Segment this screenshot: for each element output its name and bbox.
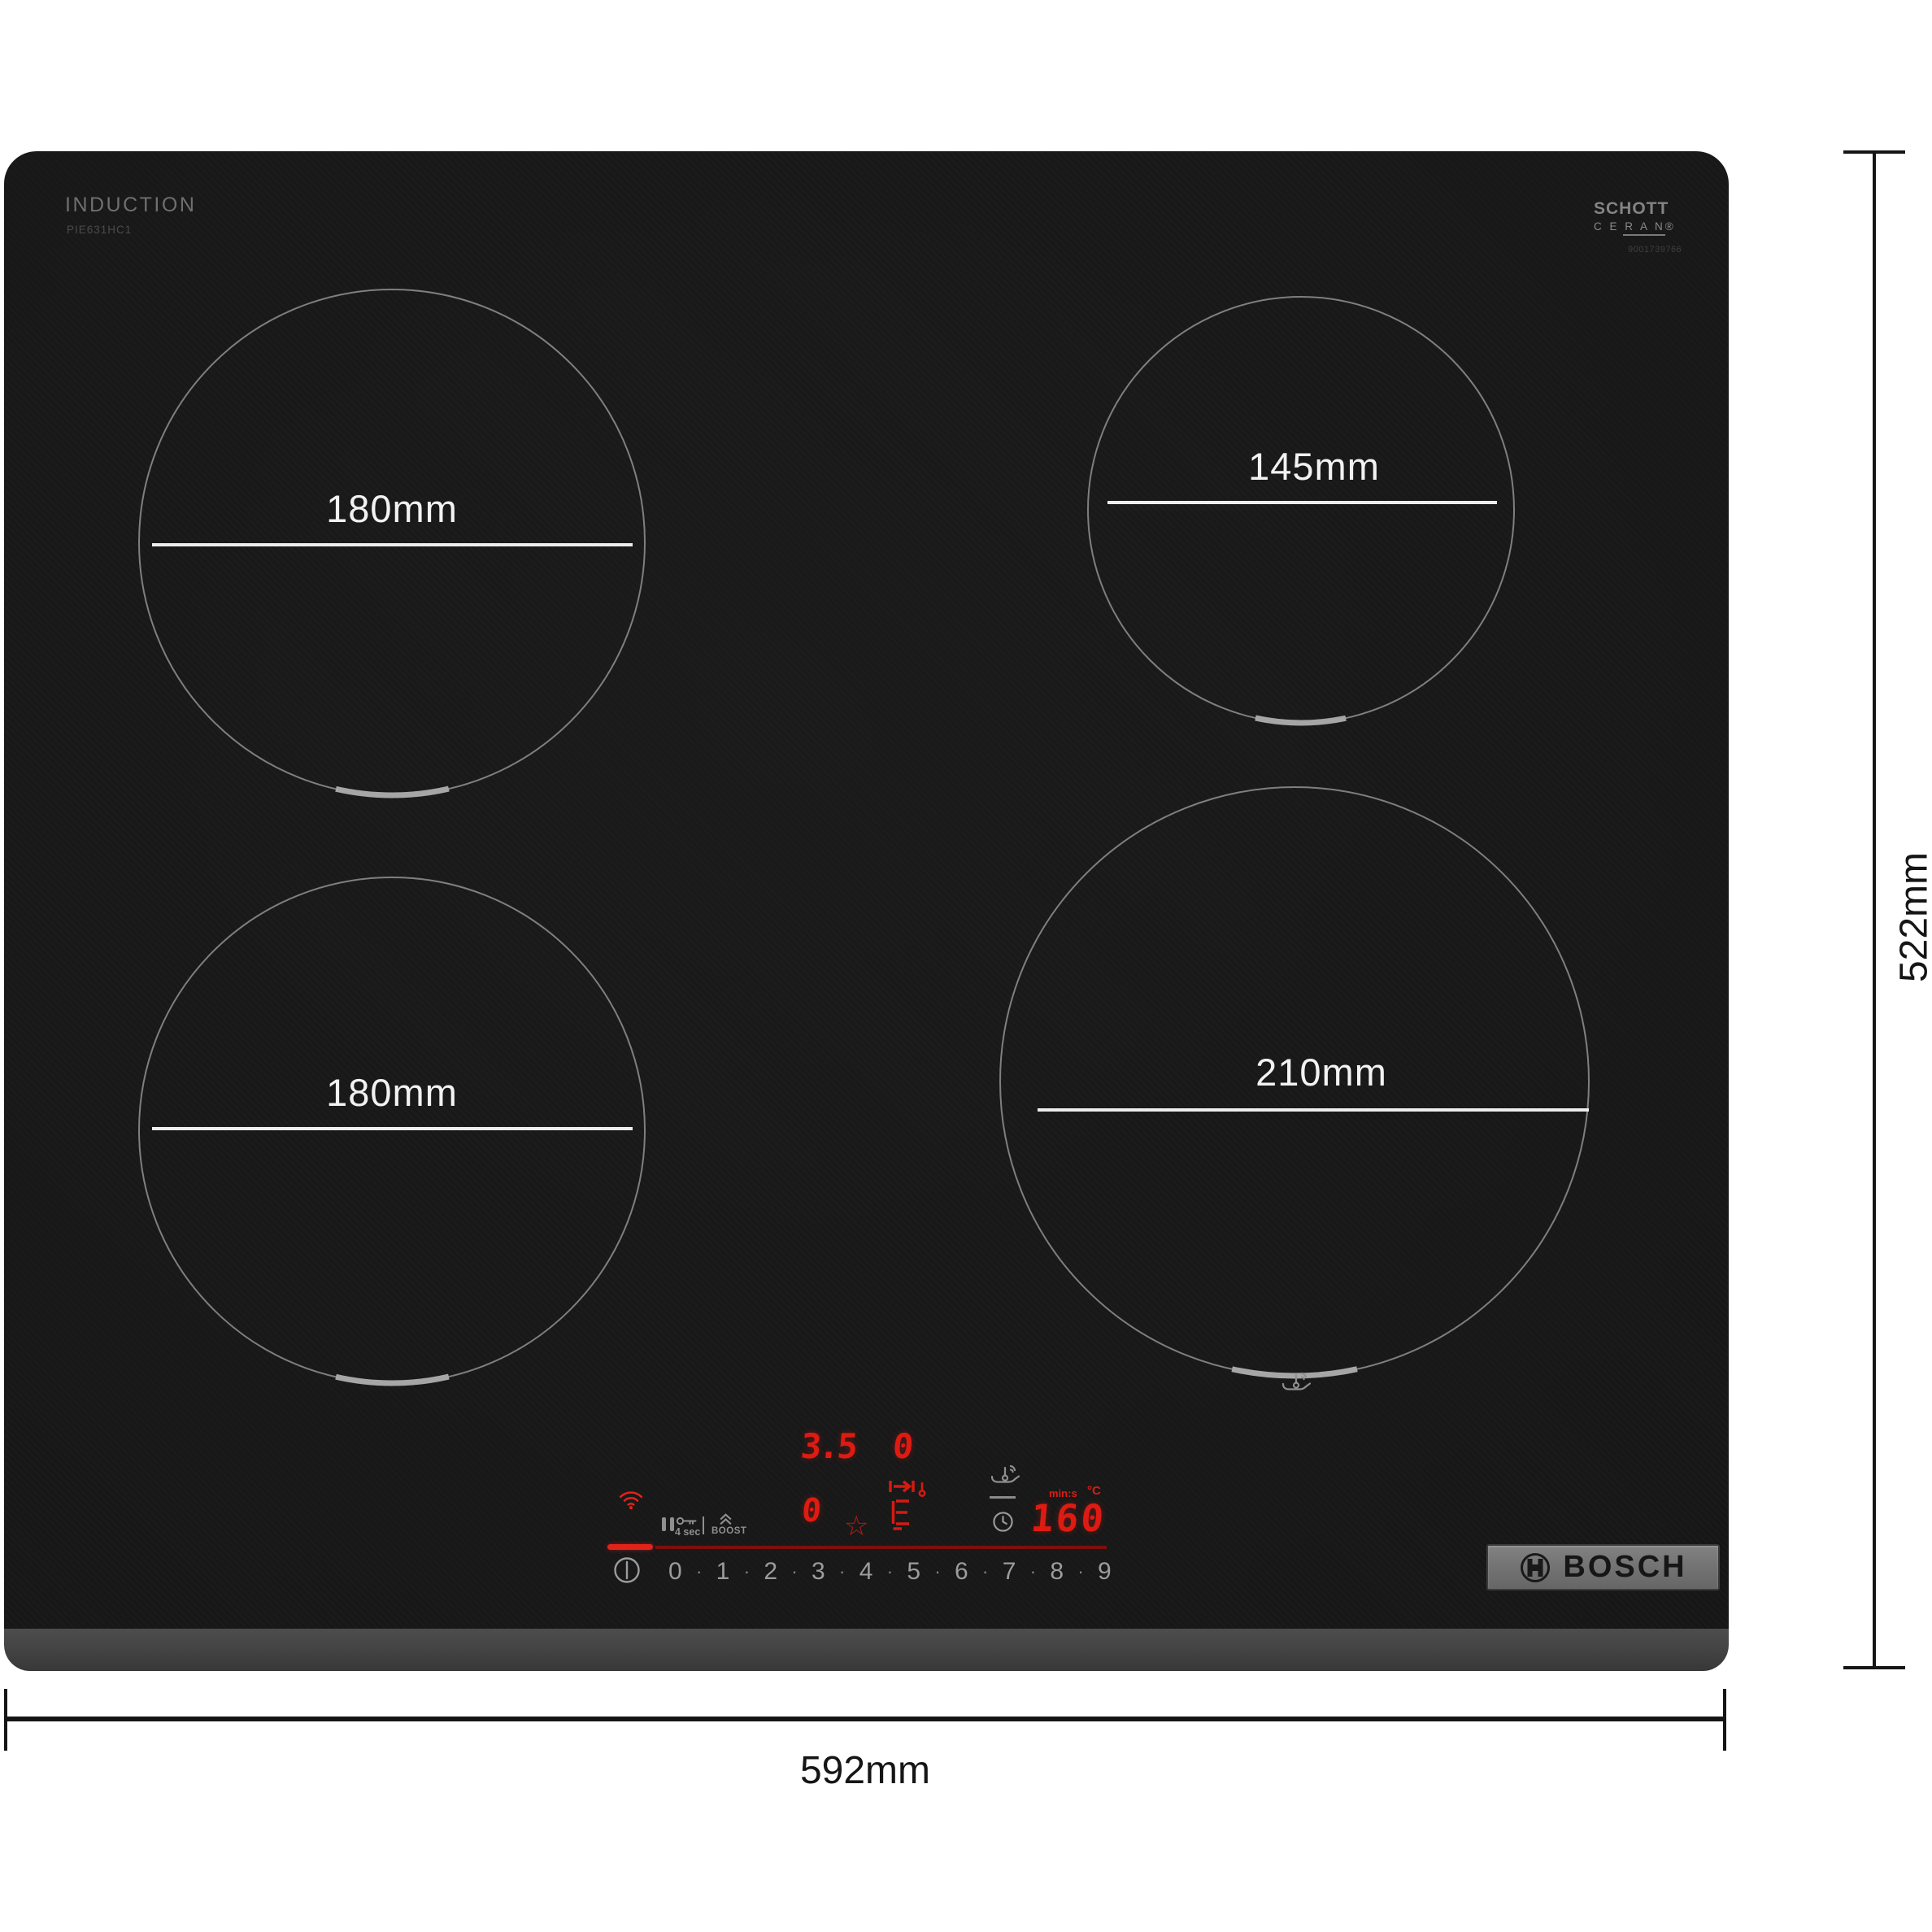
zone-rear-right-notch (1088, 297, 1514, 723)
temperature-display: 160 (1029, 1499, 1107, 1537)
zone-front-right-size-label: 210mm (1199, 1050, 1443, 1094)
height-dimension-line (1873, 152, 1876, 1669)
level-separator-dot: · (744, 1561, 750, 1582)
zone-rear-right-size-label: 145mm (1192, 444, 1436, 489)
zone-front-left-diameter-line (152, 1127, 633, 1130)
zone-rear-left-ring (139, 289, 645, 795)
zone-power-display-top-left: 3.5 (799, 1429, 857, 1464)
zone-rear-left-diameter-line (152, 543, 633, 546)
power-button[interactable] (612, 1556, 642, 1585)
power-level[interactable]: 8 (1050, 1558, 1064, 1586)
timer-clock-icon[interactable] (992, 1511, 1014, 1533)
pause-icon[interactable] (662, 1517, 674, 1531)
power-level[interactable]: 3 (812, 1558, 825, 1586)
power-level[interactable]: 7 (1003, 1558, 1016, 1586)
key-lock-icon[interactable] (676, 1515, 697, 1527)
zone-front-right-diameter-line (1038, 1108, 1589, 1112)
star-favourite-icon[interactable]: ☆ (844, 1512, 868, 1540)
frying-sensor-icon[interactable] (989, 1462, 1020, 1490)
schott-logo-line1: SCHOTT (1594, 199, 1691, 219)
power-level[interactable]: 9 (1098, 1558, 1112, 1586)
zone-rear-right-diameter-line (1107, 501, 1497, 504)
pan-transfer-indicator-icon (888, 1478, 927, 1530)
induction-print-label: INDUCTION (65, 194, 196, 217)
wifi-home-connect-icon[interactable] (618, 1489, 644, 1510)
cooking-sensor-icon (1280, 1369, 1311, 1397)
zone-power-display-top-right: 0 (891, 1429, 915, 1464)
power-level-strip[interactable]: 0·1·2·3·4·5·6·7·8·9 (668, 1558, 1112, 1586)
boost-label[interactable]: BOOST (711, 1527, 746, 1537)
zone-power-display-bottom: 0 (800, 1495, 823, 1527)
zone-select-line[interactable] (990, 1496, 1016, 1499)
bosch-logo-text: BOSCH (1563, 1550, 1686, 1585)
power-level[interactable]: 0 (668, 1558, 682, 1586)
level-separator-dot: · (791, 1561, 797, 1582)
panel-divider (703, 1516, 704, 1534)
schott-ceran-logo: SCHOTT C E R A N® 9001739766 (1594, 199, 1691, 255)
width-dimension-tick-right (1723, 1689, 1726, 1751)
level-separator-dot: · (1077, 1561, 1083, 1582)
height-dimension-label: 522mm (1892, 852, 1932, 982)
level-separator-dot: · (887, 1561, 893, 1582)
power-level[interactable]: 2 (764, 1558, 777, 1586)
power-level[interactable]: 6 (955, 1558, 968, 1586)
height-dimension-tick-top (1843, 150, 1905, 154)
temp-unit-label: °C (1087, 1485, 1101, 1497)
bosch-armature-icon (1519, 1551, 1551, 1584)
zone-rear-left-notch (139, 289, 645, 795)
cooking-zone-rings (0, 0, 1932, 1932)
level-separator-dot: · (696, 1561, 702, 1582)
bosch-badge: BOSCH (1486, 1544, 1720, 1590)
width-dimension-line (6, 1717, 1725, 1721)
level-separator-dot: · (982, 1561, 988, 1582)
model-number-label: PIE631HC1 (67, 224, 132, 236)
power-level[interactable]: 1 (716, 1558, 730, 1586)
power-slider-active-segment[interactable] (607, 1544, 653, 1550)
boost-chevrons-icon[interactable] (719, 1513, 733, 1525)
zone-rear-left-size-label: 180mm (270, 486, 514, 531)
key-hold-label: 4 sec (675, 1527, 700, 1538)
width-dimension-tick-left (4, 1689, 7, 1751)
level-separator-dot: · (934, 1561, 940, 1582)
power-level[interactable]: 5 (907, 1558, 920, 1586)
zone-front-left-size-label: 180mm (270, 1070, 514, 1115)
power-level[interactable]: 4 (859, 1558, 873, 1586)
zone-front-left-notch (139, 877, 645, 1383)
glass-serial-number: 9001739766 (1628, 245, 1691, 255)
level-separator-dot: · (1030, 1561, 1036, 1582)
schott-logo-line2: C E R A N® (1594, 220, 1691, 233)
level-separator-dot: · (839, 1561, 845, 1582)
width-dimension-label: 592mm (784, 1748, 946, 1793)
power-slider-track[interactable] (655, 1546, 1107, 1549)
zone-front-left-ring (139, 877, 645, 1383)
height-dimension-tick-bottom (1843, 1666, 1905, 1669)
schott-logo-underline (1623, 234, 1665, 236)
product-diagram: 180mm 145mm 180mm 210mm INDUCTION PIE631… (0, 0, 1932, 1932)
zone-rear-right-ring (1088, 297, 1514, 723)
